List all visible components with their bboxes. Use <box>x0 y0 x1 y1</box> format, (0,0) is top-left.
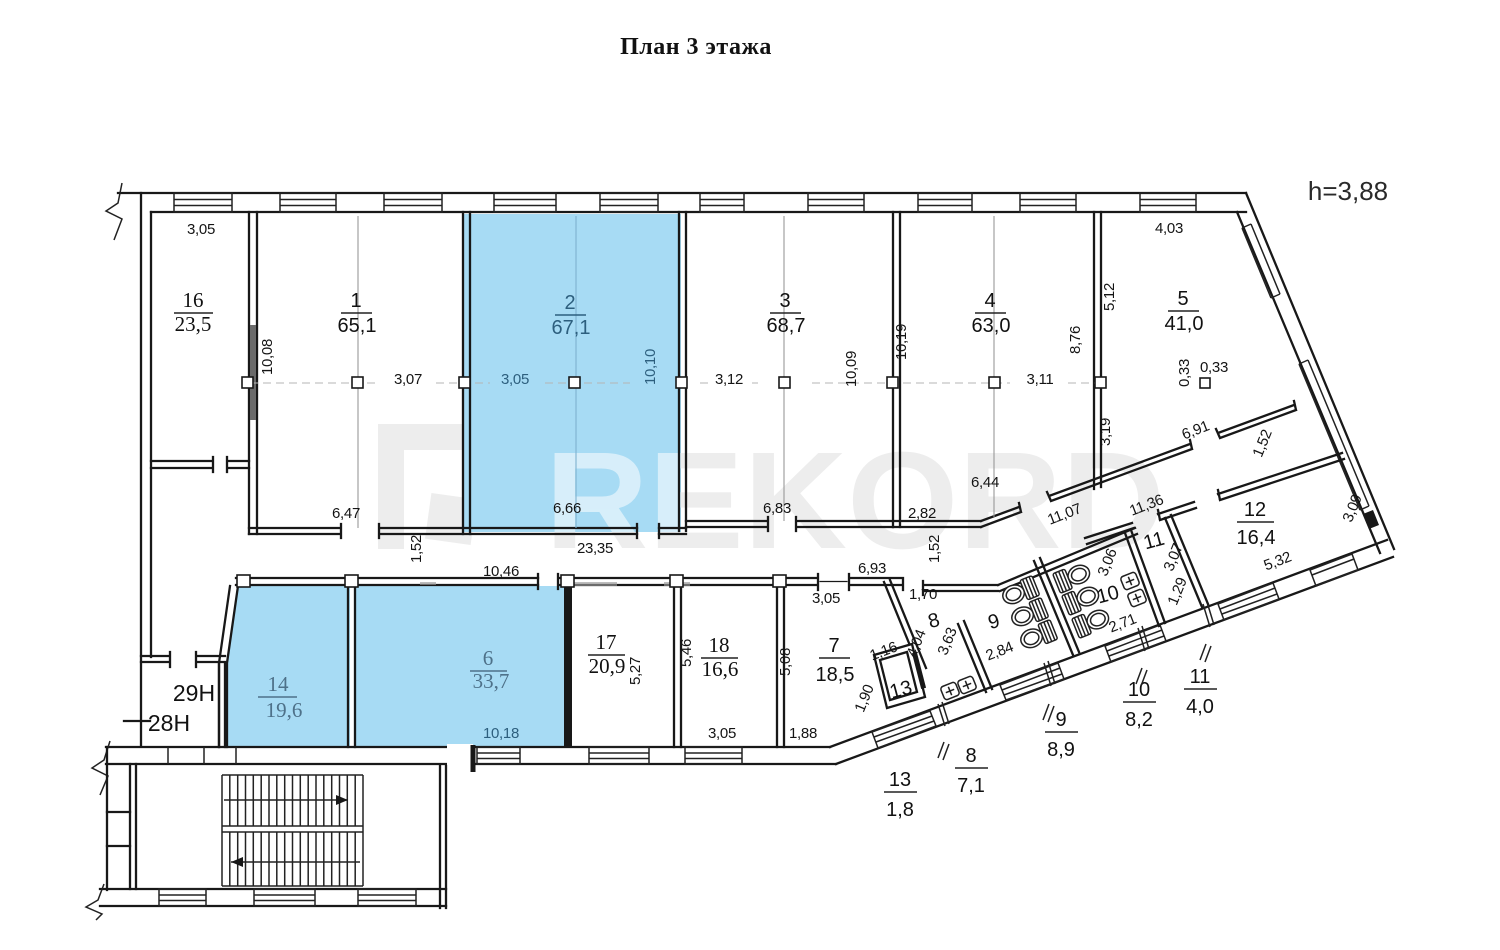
svg-text:14: 14 <box>268 672 290 696</box>
svg-text:2,71: 2,71 <box>1106 610 1138 636</box>
svg-text:10: 10 <box>1128 679 1150 701</box>
svg-text:3,11: 3,11 <box>1027 371 1054 388</box>
svg-text:5,32: 5,32 <box>1261 548 1293 574</box>
svg-text:h=3,88: h=3,88 <box>1308 176 1388 206</box>
svg-text:3,05: 3,05 <box>812 590 840 607</box>
svg-text:18: 18 <box>709 633 730 657</box>
svg-text:8: 8 <box>926 609 942 633</box>
svg-text:3,07: 3,07 <box>394 371 422 388</box>
svg-text:10,18: 10,18 <box>483 725 519 742</box>
svg-text:67,1: 67,1 <box>552 317 591 339</box>
svg-text:16: 16 <box>183 288 204 312</box>
svg-text:10,19: 10,19 <box>893 324 910 360</box>
svg-text:33,7: 33,7 <box>473 669 510 693</box>
svg-text:1,52: 1,52 <box>408 535 425 563</box>
svg-text:20,9: 20,9 <box>589 654 626 678</box>
svg-text:10: 10 <box>1094 581 1121 608</box>
svg-text:5: 5 <box>1177 288 1188 310</box>
svg-text:3,19: 3,19 <box>1097 418 1114 446</box>
svg-text:1,52: 1,52 <box>1249 427 1275 459</box>
svg-text:23,5: 23,5 <box>175 312 212 336</box>
svg-text:10,09: 10,09 <box>843 351 860 387</box>
svg-text:4,04: 4,04 <box>903 627 929 659</box>
svg-text:0,33: 0,33 <box>1200 359 1228 376</box>
svg-text:2: 2 <box>564 292 575 314</box>
svg-text:6,66: 6,66 <box>553 500 581 517</box>
svg-text:3,05: 3,05 <box>708 725 736 742</box>
svg-text:4: 4 <box>984 290 995 312</box>
svg-text:3,05: 3,05 <box>501 371 529 388</box>
svg-text:1,70: 1,70 <box>909 586 937 603</box>
svg-text:1,52: 1,52 <box>926 535 943 563</box>
svg-text:10,08: 10,08 <box>259 339 276 375</box>
svg-text:1: 1 <box>350 290 361 312</box>
svg-text:18,5: 18,5 <box>816 664 855 686</box>
svg-text:11: 11 <box>1190 666 1211 688</box>
svg-text:7,1: 7,1 <box>957 775 985 797</box>
svg-text:10,10: 10,10 <box>642 349 659 385</box>
svg-text:17: 17 <box>596 630 617 654</box>
svg-text:4,03: 4,03 <box>1155 220 1183 237</box>
svg-text:6: 6 <box>483 646 494 670</box>
svg-text:5,27: 5,27 <box>627 657 644 685</box>
svg-text:6,93: 6,93 <box>858 560 886 577</box>
svg-text:68,7: 68,7 <box>767 315 806 337</box>
svg-text:8,9: 8,9 <box>1047 739 1075 761</box>
svg-text:16,6: 16,6 <box>702 657 739 681</box>
svg-text:29Н: 29Н <box>173 680 215 706</box>
svg-text:6,91: 6,91 <box>1179 417 1211 443</box>
svg-text:8,76: 8,76 <box>1067 326 1084 354</box>
svg-text:1,88: 1,88 <box>789 725 817 742</box>
svg-text:2,82: 2,82 <box>908 505 936 522</box>
svg-text:0,33: 0,33 <box>1176 359 1193 387</box>
svg-text:41,0: 41,0 <box>1165 313 1204 335</box>
svg-text:1,29: 1,29 <box>1164 575 1190 607</box>
svg-text:65,1: 65,1 <box>338 315 377 337</box>
svg-text:3,12: 3,12 <box>715 371 743 388</box>
svg-text:9: 9 <box>1055 709 1066 731</box>
svg-text:13: 13 <box>889 769 911 791</box>
svg-text:10,46: 10,46 <box>483 563 519 580</box>
svg-text:3,05: 3,05 <box>187 221 215 238</box>
svg-text:7: 7 <box>828 635 839 657</box>
svg-text:6,44: 6,44 <box>971 474 999 491</box>
svg-text:8: 8 <box>965 745 976 767</box>
svg-text:План 3 этажа: План 3 этажа <box>620 34 772 60</box>
svg-text:6,47: 6,47 <box>332 505 360 522</box>
svg-text:19,6: 19,6 <box>266 698 303 722</box>
svg-text:5,46: 5,46 <box>678 639 695 667</box>
svg-text:6,83: 6,83 <box>763 500 791 517</box>
svg-text:5,08: 5,08 <box>777 648 794 676</box>
svg-text:12: 12 <box>1244 499 1266 521</box>
svg-text:1,90: 1,90 <box>851 682 877 714</box>
svg-text:1,8: 1,8 <box>886 799 914 821</box>
svg-text:3: 3 <box>779 290 790 312</box>
svg-text:4,0: 4,0 <box>1186 696 1214 718</box>
svg-text:63,0: 63,0 <box>972 315 1011 337</box>
svg-text:9: 9 <box>986 610 1002 634</box>
svg-text:5,12: 5,12 <box>1101 283 1118 311</box>
svg-text:2,84: 2,84 <box>983 638 1015 664</box>
svg-text:28Н: 28Н <box>148 710 190 736</box>
svg-text:16,4: 16,4 <box>1237 527 1276 549</box>
svg-text:8,2: 8,2 <box>1125 709 1153 731</box>
svg-text:23,35: 23,35 <box>577 540 613 557</box>
